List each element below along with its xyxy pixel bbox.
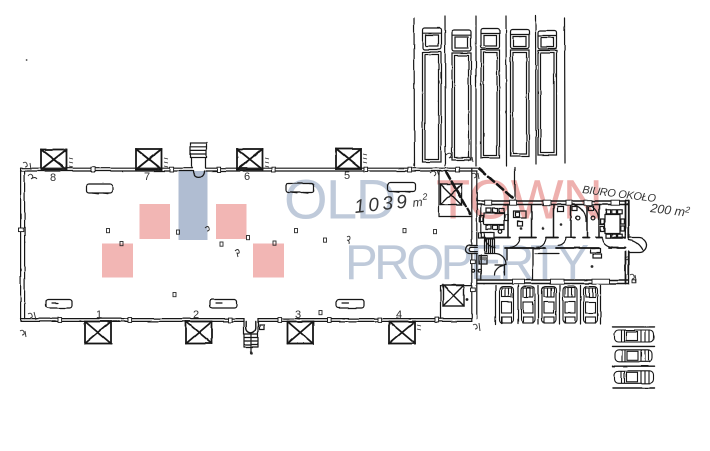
svg-text:6: 6 xyxy=(244,171,250,183)
svg-text:1: 1 xyxy=(96,309,102,321)
svg-text:3: 3 xyxy=(295,309,301,321)
svg-text:8: 8 xyxy=(50,172,56,184)
svg-text:7: 7 xyxy=(144,171,150,183)
svg-text:5: 5 xyxy=(344,170,350,182)
svg-text:4: 4 xyxy=(396,309,402,321)
svg-text:200 m2: 200 m2 xyxy=(649,200,691,220)
svg-text:2: 2 xyxy=(193,309,199,321)
